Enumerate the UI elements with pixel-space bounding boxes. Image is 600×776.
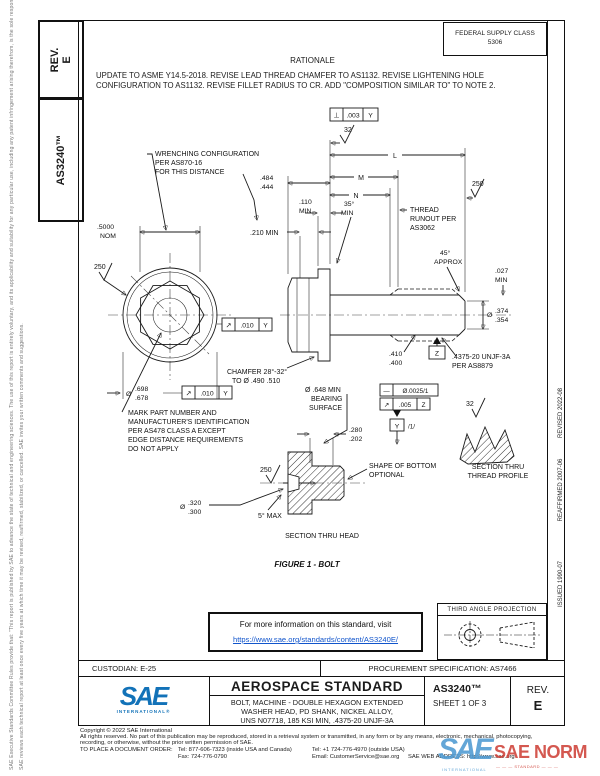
dim-210: .210 MIN bbox=[250, 230, 278, 237]
fcf-bearing-datum: Z bbox=[422, 402, 426, 409]
watermark-name: SAE NORM bbox=[494, 742, 587, 763]
fcf-perpendicularity: ⊥ .003 Y bbox=[330, 108, 378, 121]
rev-label: REV. bbox=[49, 47, 61, 72]
dim-thread-od-dia: Ø bbox=[487, 312, 493, 319]
finish-32-thread: 32 bbox=[466, 401, 474, 408]
sae-logo: SAE bbox=[78, 677, 209, 709]
fcf-flange-runout: ↗ .010 Y bbox=[182, 386, 232, 399]
fcf-top-datum: Y bbox=[368, 113, 373, 120]
dim-thread-od-max: .374 bbox=[495, 308, 508, 315]
figure-1-bolt-drawing: ⊥ .003 Y ↗ .010 Y ↗ .010 Y — Ø.0025/1 bbox=[78, 98, 548, 600]
title-block-row1: CUSTODIAN: E-25 PROCUREMENT SPECIFICATIO… bbox=[78, 660, 565, 677]
fcf-bearing-tolerance: .005 bbox=[399, 402, 412, 409]
bearing-note-1: Ø .648 MIN bbox=[305, 387, 341, 394]
datum-y-letter: Y bbox=[395, 424, 400, 431]
custodian: CUSTODIAN: E-25 bbox=[92, 664, 156, 673]
mark-note-1: MARK PART NUMBER AND bbox=[128, 410, 217, 417]
fsc-label: FEDERAL SUPPLY CLASS bbox=[444, 29, 546, 38]
procurement-specification: PROCUREMENT SPECIFICATION: AS7466 bbox=[320, 664, 565, 673]
runout-note-1: THREAD bbox=[410, 207, 439, 214]
left-margin-text-1: SAE Executive Standards Committee Rules … bbox=[9, 25, 15, 770]
dim-320-dia: Ø bbox=[180, 504, 186, 511]
rights-line-2: recording, or otherwise, without the pri… bbox=[80, 740, 253, 746]
sae-norm-watermark: SAE INTERNATIONAL SAE NORM — — — STANDAR… bbox=[438, 735, 600, 776]
dim-thread-od-min: .354 bbox=[495, 317, 508, 324]
tel-usa: Tel: 877-606-7323 (inside USA and Canada… bbox=[178, 747, 292, 753]
fcf-head-datum: Y bbox=[263, 323, 268, 330]
fcf-bearing-symbol: ↗ bbox=[384, 402, 389, 409]
section-thread-label-2: THREAD PROFILE bbox=[468, 473, 529, 480]
email: Email: CustomerService@sae.org bbox=[312, 754, 399, 760]
sheet-number: SHEET 1 OF 3 bbox=[425, 695, 510, 708]
bearing-note-2: BEARING bbox=[311, 396, 343, 403]
title-block-rev-label: REV. bbox=[511, 677, 565, 696]
fax: Fax: 724-776-0790 bbox=[178, 754, 227, 760]
finish-32-top: 32 bbox=[344, 127, 352, 134]
dim-280-min: .202 bbox=[349, 436, 362, 443]
datum-z-symbol: Z bbox=[429, 337, 445, 359]
angle-45-value: 45° bbox=[440, 249, 451, 257]
chamfer-note-1: CHAMFER 28°-32° bbox=[227, 368, 287, 376]
chamfer-note-2: TO Ø .490 .510 bbox=[232, 378, 280, 385]
third-angle-projection-box: THIRD ANGLE PROJECTION bbox=[437, 603, 547, 660]
dim-head-height-max: .484 bbox=[260, 175, 273, 182]
doc-number-cell: AS3240™ SHEET 1 OF 3 bbox=[425, 677, 511, 726]
thread-spec-1: .4375-20 UNJF-3A bbox=[452, 354, 511, 361]
mark-note-4: EDGE DISTANCE REQUIREMENTS bbox=[128, 437, 243, 444]
section-thread-label-1: SECTION THRU bbox=[472, 464, 524, 471]
wrenching-note-1: WRENCHING CONFIGURATION bbox=[155, 151, 259, 158]
angle-5-max: 5° MAX bbox=[258, 512, 282, 520]
more-info-box: For more information on this standard, v… bbox=[208, 612, 423, 652]
fcf-straight-tolerance: Ø.0025/1 bbox=[403, 388, 429, 395]
fcf-head-symbol: ↗ bbox=[226, 323, 232, 330]
dim-pd-max: .410 bbox=[389, 351, 402, 358]
finish-250-section: 250 bbox=[260, 467, 272, 474]
title-line-2: WASHER HEAD, PD SHANK, NICKEL ALLOY, bbox=[210, 707, 424, 716]
dim-head-height-min: .444 bbox=[260, 184, 273, 191]
dim-280-max: .280 bbox=[349, 427, 362, 434]
watermark-international: INTERNATIONAL bbox=[442, 767, 487, 772]
fcf-top-tolerance: .003 bbox=[346, 113, 359, 120]
fcf-head-tolerance: .010 bbox=[240, 323, 253, 330]
document-page: SAE Executive Standards Committee Rules … bbox=[0, 0, 600, 776]
dim-flange-od-min: .678 bbox=[135, 395, 148, 402]
dim-N: N bbox=[353, 193, 358, 200]
standard-link[interactable]: https://www.sae.org/standards/content/AS… bbox=[233, 635, 398, 644]
dim-5000-nom: NOM bbox=[100, 233, 116, 240]
projection-label: THIRD ANGLE PROJECTION bbox=[438, 604, 546, 616]
rationale-text: UPDATE TO ASME Y14.5-2018. REVISE LEAD T… bbox=[96, 71, 536, 91]
wrenching-note-2: PER AS870-16 bbox=[155, 160, 202, 167]
dim-L: L bbox=[393, 153, 397, 160]
sae-logo-sub: INTERNATIONAL® bbox=[78, 709, 209, 714]
dim-027-min: MIN bbox=[495, 277, 508, 284]
dim-110-min: MIN bbox=[299, 208, 312, 215]
doc-number-vertical: AS3240™ bbox=[55, 135, 67, 186]
date-issued: ISSUED 1990-07 bbox=[558, 529, 564, 639]
datum-z-letter: Z bbox=[435, 351, 439, 358]
fcf-flange-tolerance: .010 bbox=[200, 391, 213, 398]
fcf-flange-datum: Y bbox=[223, 391, 228, 398]
section-thru-head bbox=[288, 452, 344, 514]
fcf-straight-symbol: — bbox=[383, 388, 390, 395]
figure-caption: FIGURE 1 - BOLT bbox=[274, 560, 340, 569]
watermark-sae-logo: SAE bbox=[438, 735, 491, 765]
fcf-bearing-runout: ↗ .005 Z bbox=[380, 398, 430, 410]
title-cell: AEROSPACE STANDARD BOLT, MACHINE - DOUBL… bbox=[210, 677, 425, 726]
tel-outside: Tel: +1 724-776-4970 (outside USA) bbox=[312, 747, 405, 753]
mark-note-2: MANUFACTURER'S IDENTIFICATION bbox=[128, 419, 249, 426]
bottom-note-1: SHAPE OF BOTTOM bbox=[369, 463, 436, 470]
mark-note-5: DO NOT APPLY bbox=[128, 446, 179, 453]
wrenching-note-3: FOR THIS DISTANCE bbox=[155, 169, 225, 176]
angle-45-approx: APPROX bbox=[434, 259, 463, 266]
fcf-top-symbol: ⊥ bbox=[334, 113, 340, 120]
rev-value: E bbox=[61, 56, 73, 63]
datum-y-flag-note: /1/ bbox=[408, 424, 415, 431]
rev-cell: REV. E bbox=[511, 677, 565, 726]
angle-35-min: MIN bbox=[341, 210, 354, 217]
runout-note-3: AS3062 bbox=[410, 225, 435, 232]
bearing-note-3: SURFACE bbox=[309, 405, 342, 412]
title-block-rev-value: E bbox=[511, 696, 565, 713]
runout-note-2: RUNOUT PER bbox=[410, 216, 456, 223]
dim-pd-min: .400 bbox=[389, 360, 402, 367]
title-line-3: UNS N07718, 185 KSI MIN, .4375-20 UNJF-3… bbox=[210, 716, 424, 725]
dim-5000-value: .5000 bbox=[97, 224, 114, 231]
more-info-text: For more information on this standard, v… bbox=[210, 620, 421, 629]
projection-symbol-icon bbox=[438, 616, 546, 654]
bottom-note-2: OPTIONAL bbox=[369, 472, 405, 479]
section-head-label: SECTION THRU HEAD bbox=[285, 533, 359, 540]
dim-110-value: .110 bbox=[299, 199, 312, 206]
doc-type: AEROSPACE STANDARD bbox=[210, 677, 424, 696]
federal-supply-class-box: FEDERAL SUPPLY CLASS 5306 bbox=[443, 22, 547, 56]
dim-flange-od-dia: Ø bbox=[126, 391, 132, 398]
dim-M: M bbox=[358, 175, 364, 182]
order-label: TO PLACE A DOCUMENT ORDER: bbox=[80, 747, 173, 753]
fcf-straightness: — Ø.0025/1 bbox=[380, 384, 438, 396]
finish-250-shank: 250 bbox=[472, 181, 484, 188]
dim-320-min: .300 bbox=[188, 509, 201, 516]
section-thru-thread-profile bbox=[460, 427, 514, 464]
title-line-1: BOLT, MACHINE - DOUBLE HEXAGON EXTENDED bbox=[210, 698, 424, 707]
datum-y-symbol: Y /1/ bbox=[390, 410, 415, 431]
finish-250-head: 250 bbox=[94, 264, 106, 271]
dim-flange-od-max: .698 bbox=[135, 386, 148, 393]
dim-320-max: .320 bbox=[188, 500, 201, 507]
mark-note-3: PER AS478 CLASS A EXCEPT bbox=[128, 428, 226, 435]
title-block-doc-number: AS3240™ bbox=[425, 677, 510, 695]
rationale-title: RATIONALE bbox=[78, 56, 547, 65]
angle-35-value: 35° bbox=[344, 200, 355, 208]
thread-spec-2: PER AS8879 bbox=[452, 363, 493, 370]
sae-logo-cell: SAE INTERNATIONAL® bbox=[78, 677, 210, 726]
fcf-head-runout: ↗ .010 Y bbox=[222, 318, 272, 331]
fsc-value: 5306 bbox=[444, 38, 546, 47]
dim-027-value: .027 bbox=[495, 268, 508, 275]
watermark-standard: — — — STANDARD — — — bbox=[496, 764, 558, 769]
fcf-flange-symbol: ↗ bbox=[186, 391, 192, 398]
left-margin-text-2: SAE reviews each technical report at lea… bbox=[19, 25, 25, 770]
